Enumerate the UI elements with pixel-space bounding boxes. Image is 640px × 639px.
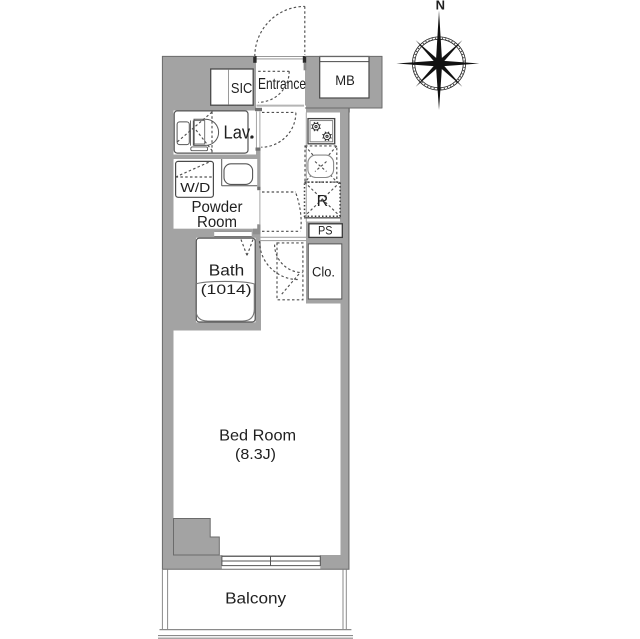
svg-text:MB: MB xyxy=(335,73,355,88)
svg-text:(1014): (1014) xyxy=(201,282,252,297)
svg-text:SIC: SIC xyxy=(231,81,253,97)
svg-text:(8.3J): (8.3J) xyxy=(235,446,276,463)
svg-text:PS: PS xyxy=(318,226,333,238)
svg-text:Room: Room xyxy=(197,214,237,231)
svg-text:Lav.: Lav. xyxy=(224,123,254,143)
svg-text:W/D: W/D xyxy=(180,180,210,195)
svg-text:Balcony: Balcony xyxy=(225,591,286,608)
svg-text:R: R xyxy=(317,193,329,210)
svg-text:Bed Room: Bed Room xyxy=(219,428,296,445)
svg-text:Clo.: Clo. xyxy=(312,265,335,280)
svg-text:N: N xyxy=(436,0,445,13)
svg-text:Bath: Bath xyxy=(209,263,245,280)
